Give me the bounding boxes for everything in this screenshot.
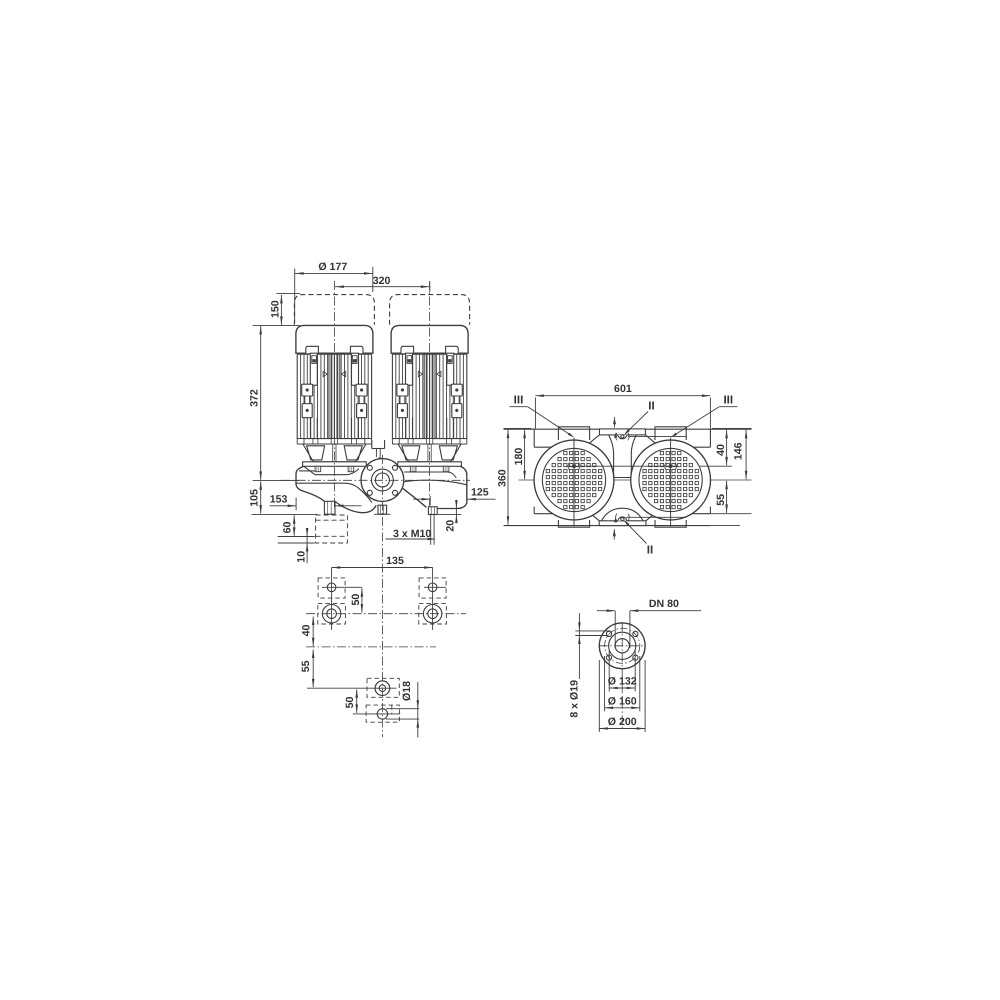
svg-text:DN 80: DN 80 — [649, 598, 679, 610]
svg-text:60: 60 — [282, 522, 294, 534]
svg-text:20: 20 — [445, 520, 457, 532]
svg-text:135: 135 — [386, 555, 404, 567]
svg-text:125: 125 — [471, 487, 489, 499]
svg-text:II: II — [648, 400, 654, 413]
svg-text:Ø 132: Ø 132 — [608, 676, 637, 688]
svg-text:153: 153 — [270, 493, 288, 505]
svg-text:Ø 177: Ø 177 — [318, 261, 347, 273]
svg-text:360: 360 — [496, 469, 508, 487]
svg-text:40: 40 — [715, 444, 727, 456]
svg-text:601: 601 — [614, 383, 632, 395]
svg-text:40: 40 — [300, 625, 312, 637]
svg-text:55: 55 — [300, 660, 312, 672]
svg-text:II: II — [647, 544, 653, 557]
svg-text:III: III — [514, 393, 524, 406]
svg-text:3 x M10: 3 x M10 — [393, 528, 431, 540]
svg-text:372: 372 — [249, 389, 261, 407]
svg-text:50: 50 — [350, 594, 362, 606]
svg-text:150: 150 — [269, 300, 281, 318]
svg-text:55: 55 — [715, 494, 727, 506]
svg-text:146: 146 — [733, 442, 745, 460]
svg-text:105: 105 — [249, 489, 261, 507]
svg-text:50: 50 — [344, 697, 356, 709]
svg-text:Ø 160: Ø 160 — [608, 695, 637, 707]
svg-text:10: 10 — [296, 551, 308, 563]
svg-text:8 x Ø19: 8 x Ø19 — [569, 680, 581, 718]
svg-text:Ø 200: Ø 200 — [608, 716, 637, 728]
svg-text:Ø18: Ø18 — [401, 681, 413, 701]
svg-text:180: 180 — [513, 448, 525, 466]
svg-text:III: III — [723, 393, 733, 406]
svg-text:320: 320 — [373, 275, 391, 287]
